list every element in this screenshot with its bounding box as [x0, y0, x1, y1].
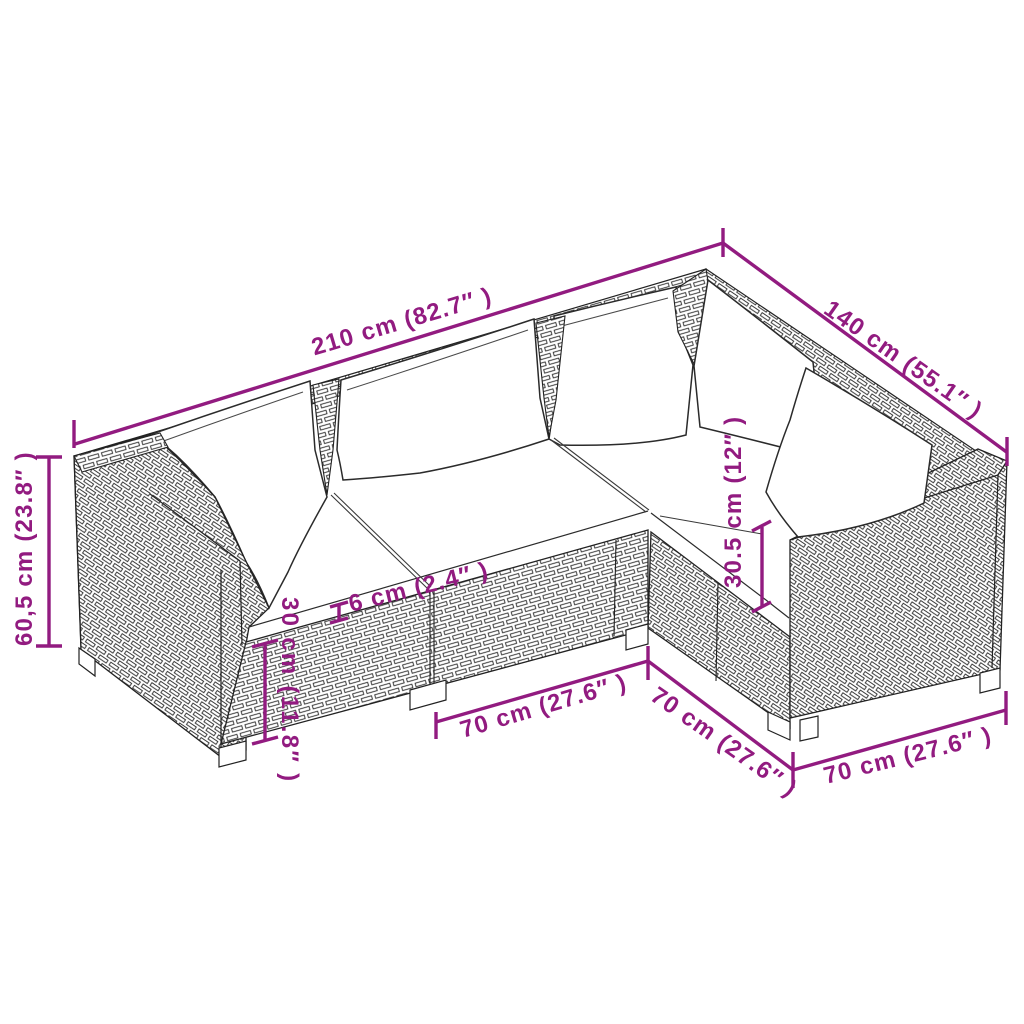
svg-text:30.5 cm (12″ ): 30.5 cm (12″ ): [720, 416, 747, 588]
svg-text:60,5 cm (23.8″ ): 60,5 cm (23.8″ ): [11, 451, 38, 646]
svg-text:30 cm (11.8″ ): 30 cm (11.8″ ): [276, 597, 303, 783]
